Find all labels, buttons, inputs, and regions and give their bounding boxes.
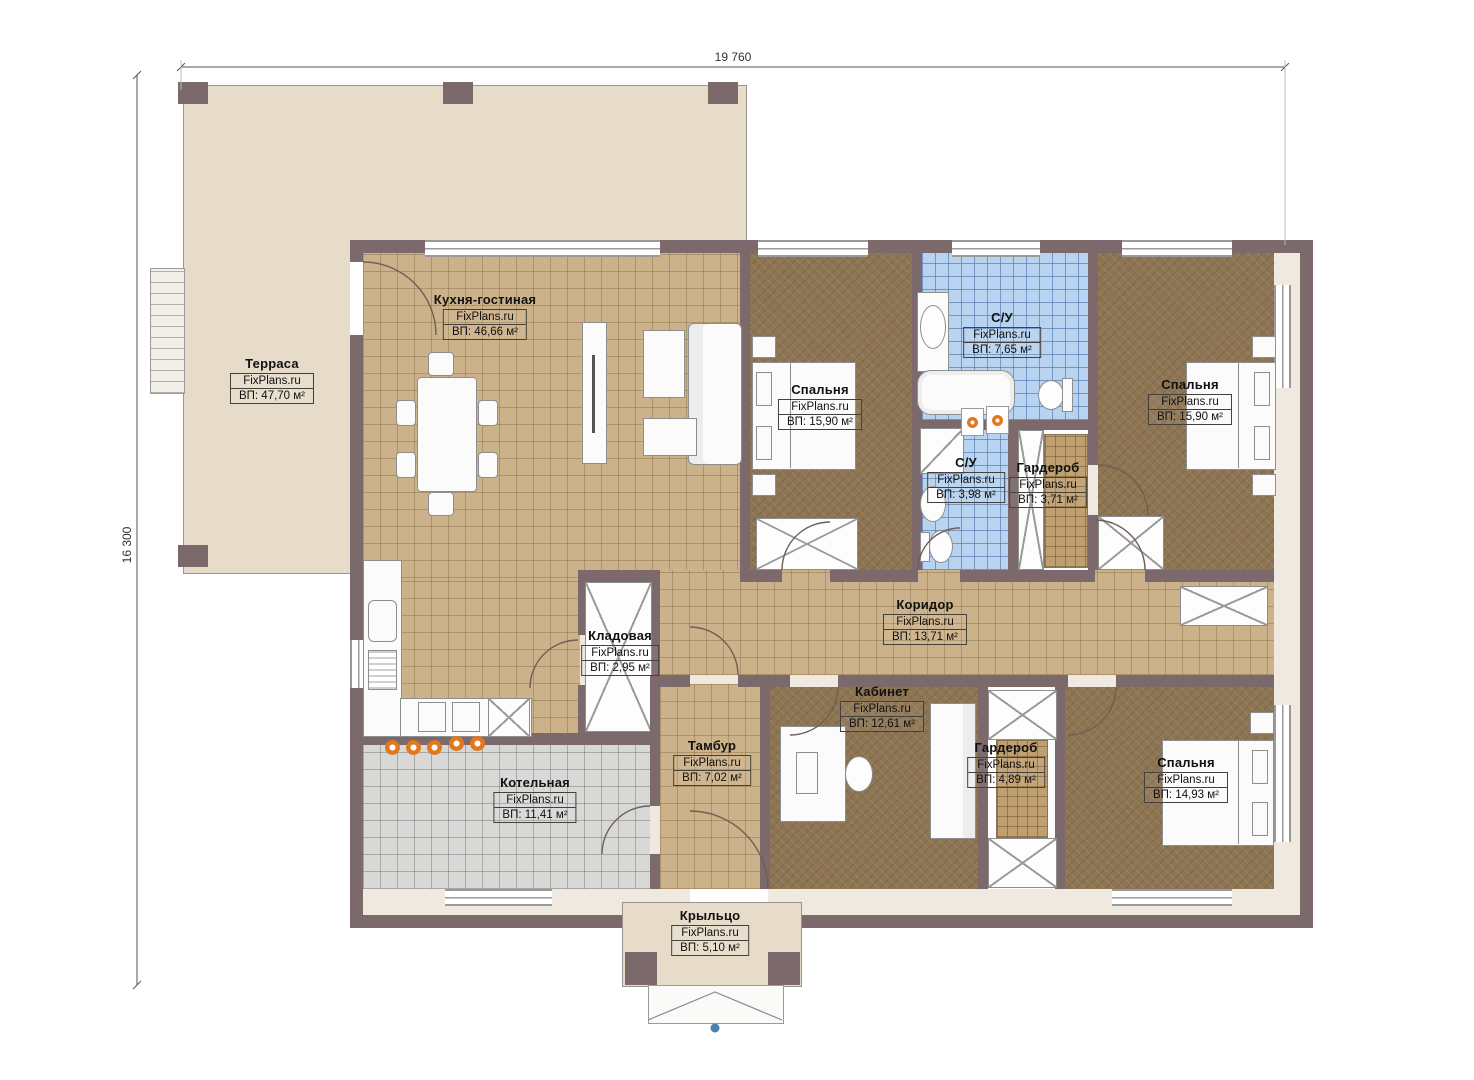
room-name: Котельная (493, 775, 576, 790)
room-label-terrace: Терраса FixPlans.ru ВП: 47,70 м² (230, 356, 314, 404)
room-name: Спальня (778, 382, 862, 397)
room-area: ВП: 3,71 м² (1010, 492, 1086, 507)
brand-watermark: FixPlans.ru (1145, 773, 1227, 787)
brand-watermark: FixPlans.ru (1010, 478, 1086, 492)
room-name: Терраса (230, 356, 314, 371)
room-label-box: FixPlans.ru ВП: 46,66 м² (443, 309, 527, 340)
room-area: ВП: 5,10 м² (672, 940, 748, 955)
door-arc-boiler (602, 806, 650, 854)
door-arc-bedroom2 (1095, 520, 1145, 570)
room-area: ВП: 3,98 м² (928, 487, 1004, 502)
room-name: Спальня (1148, 377, 1232, 392)
room-area: ВП: 15,90 м² (779, 414, 861, 429)
room-label-office: Кабинет FixPlans.ru ВП: 12,61 м² (840, 684, 924, 732)
room-name: Спальня (1144, 755, 1228, 770)
room-area: ВП: 13,71 м² (884, 629, 966, 644)
room-area: ВП: 7,65 м² (964, 342, 1040, 357)
room-label-box: FixPlans.ru ВП: 7,65 м² (963, 327, 1041, 358)
brand-watermark: FixPlans.ru (968, 758, 1044, 772)
brand-watermark: FixPlans.ru (884, 615, 966, 629)
room-area: ВП: 7,02 м² (674, 770, 750, 785)
brand-watermark: FixPlans.ru (672, 926, 748, 940)
room-label-pantry: Кладовая FixPlans.ru ВП: 2,95 м² (581, 628, 659, 676)
room-label-box: FixPlans.ru ВП: 15,90 м² (1148, 394, 1232, 425)
room-label-bedroom1: Спальня FixPlans.ru ВП: 15,90 м² (778, 382, 862, 430)
room-label-box: FixPlans.ru ВП: 12,61 м² (840, 701, 924, 732)
door-arc-terrace (363, 262, 436, 335)
room-area: ВП: 11,41 м² (494, 807, 575, 822)
room-label-box: FixPlans.ru ВП: 47,70 м² (230, 373, 314, 404)
brand-watermark: FixPlans.ru (841, 702, 923, 716)
porch-roof-line (648, 992, 782, 1020)
door-arc-office (790, 687, 838, 735)
brand-watermark: FixPlans.ru (928, 473, 1004, 487)
room-area: ВП: 4,89 м² (968, 772, 1044, 787)
room-label-box: FixPlans.ru ВП: 3,71 м² (1009, 477, 1087, 508)
brand-watermark: FixPlans.ru (582, 646, 658, 660)
room-name: Крыльцо (671, 908, 749, 923)
room-name: С/У (927, 455, 1005, 470)
door-arc-vestibule (690, 627, 738, 675)
room-label-bedroom3: Спальня FixPlans.ru ВП: 14,93 м² (1144, 755, 1228, 803)
brand-watermark: FixPlans.ru (674, 756, 750, 770)
room-label-corridor: Коридор FixPlans.ru ВП: 13,71 м² (883, 597, 967, 645)
room-label-box: FixPlans.ru ВП: 14,93 м² (1144, 772, 1228, 803)
room-name: Коридор (883, 597, 967, 612)
brand-watermark: FixPlans.ru (494, 793, 575, 807)
room-label-bath1: С/У FixPlans.ru ВП: 7,65 м² (963, 310, 1041, 358)
room-label-box: FixPlans.ru ВП: 3,98 м² (927, 472, 1005, 503)
door-arc-pantry (530, 640, 578, 688)
room-label-box: FixPlans.ru ВП: 2,95 м² (581, 645, 659, 676)
room-name: Гардероб (967, 740, 1045, 755)
brand-watermark: FixPlans.ru (1149, 395, 1231, 409)
floor-plan: 19 760 16 300 Терраса FixPlans.ru ВП: 47… (0, 0, 1474, 1080)
room-label-bath2: С/У FixPlans.ru ВП: 3,98 м² (927, 455, 1005, 503)
door-arc-wardrobe1 (1098, 465, 1148, 515)
door-arc-bath2 (918, 528, 960, 570)
room-name: Кабинет (840, 684, 924, 699)
room-area: ВП: 12,61 м² (841, 716, 923, 731)
room-name: Тамбур (673, 738, 751, 753)
room-label-vestibule: Тамбур FixPlans.ru ВП: 7,02 м² (673, 738, 751, 786)
room-label-porch: Крыльцо FixPlans.ru ВП: 5,10 м² (671, 908, 749, 956)
room-label-box: FixPlans.ru ВП: 4,89 м² (967, 757, 1045, 788)
room-label-box: FixPlans.ru ВП: 13,71 м² (883, 614, 967, 645)
porch-marker-dot (711, 1024, 720, 1033)
room-label-box: FixPlans.ru ВП: 5,10 м² (671, 925, 749, 956)
room-area: ВП: 2,95 м² (582, 660, 658, 675)
room-area: ВП: 15,90 м² (1149, 409, 1231, 424)
room-area: ВП: 46,66 м² (444, 324, 526, 339)
room-label-bedroom2: Спальня FixPlans.ru ВП: 15,90 м² (1148, 377, 1232, 425)
room-name: Кухня-гостиная (434, 292, 536, 307)
brand-watermark: FixPlans.ru (444, 310, 526, 324)
brand-watermark: FixPlans.ru (231, 374, 313, 388)
room-label-wardrobe2: Гардероб FixPlans.ru ВП: 4,89 м² (967, 740, 1045, 788)
dimension-width-label: 19 760 (715, 50, 752, 64)
door-arc-bedroom3 (1068, 687, 1116, 735)
room-label-boiler: Котельная FixPlans.ru ВП: 11,41 м² (493, 775, 576, 823)
room-area: ВП: 14,93 м² (1145, 787, 1227, 802)
room-name: Кладовая (581, 628, 659, 643)
room-label-wardrobe1: Гардероб FixPlans.ru ВП: 3,71 м² (1009, 460, 1087, 508)
room-label-box: FixPlans.ru ВП: 15,90 м² (778, 399, 862, 430)
room-name: С/У (963, 310, 1041, 325)
room-area: ВП: 47,70 м² (231, 388, 313, 403)
room-name: Гардероб (1009, 460, 1087, 475)
door-arc-entry (690, 811, 768, 889)
brand-watermark: FixPlans.ru (779, 400, 861, 414)
room-label-kitchen: Кухня-гостиная FixPlans.ru ВП: 46,66 м² (434, 292, 536, 340)
door-arc-bedroom1 (782, 522, 830, 570)
dimension-height-label: 16 300 (120, 527, 134, 564)
brand-watermark: FixPlans.ru (964, 328, 1040, 342)
room-label-box: FixPlans.ru ВП: 11,41 м² (493, 792, 576, 823)
room-label-box: FixPlans.ru ВП: 7,02 м² (673, 755, 751, 786)
